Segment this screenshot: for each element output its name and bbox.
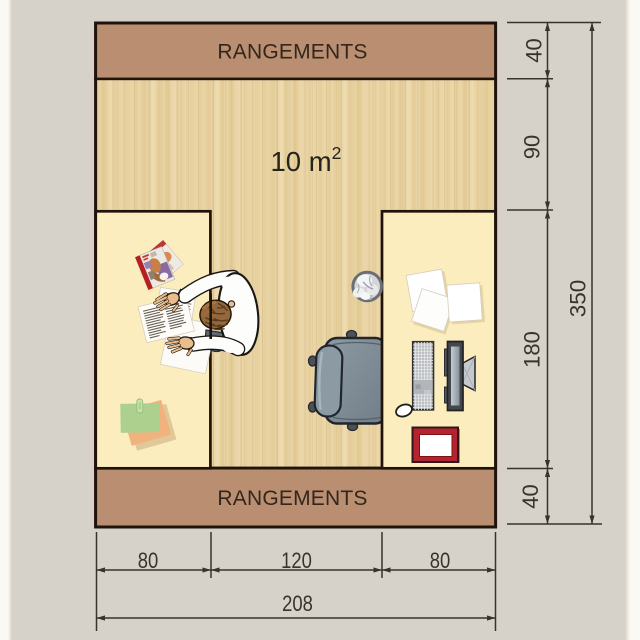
svg-text:180: 180 — [520, 331, 545, 368]
svg-text:80: 80 — [430, 548, 451, 573]
svg-text:90: 90 — [520, 135, 545, 159]
svg-text:10 m2: 10 m2 — [271, 143, 342, 177]
svg-text:208: 208 — [282, 591, 313, 616]
svg-text:80: 80 — [138, 548, 159, 573]
svg-text:RANGEMENTS: RANGEMENTS — [217, 41, 367, 64]
svg-text:40: 40 — [522, 38, 547, 62]
svg-text:RANGEMENTS: RANGEMENTS — [217, 487, 367, 510]
svg-text:120: 120 — [281, 548, 312, 573]
svg-text:40: 40 — [518, 484, 543, 508]
svg-text:350: 350 — [566, 280, 591, 318]
